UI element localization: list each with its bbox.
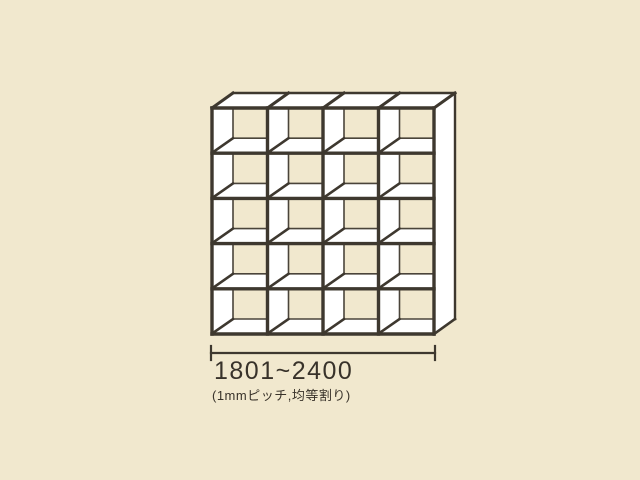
shelf-diagram	[0, 0, 640, 480]
diagram-canvas: 1801~2400 (1mmピッチ,均等割り)	[0, 0, 640, 480]
shelf-right-panel	[434, 93, 455, 334]
dimension-label: 1801~2400	[214, 357, 353, 386]
dimension-pitch-note: (1mmピッチ,均等割り)	[212, 385, 351, 404]
